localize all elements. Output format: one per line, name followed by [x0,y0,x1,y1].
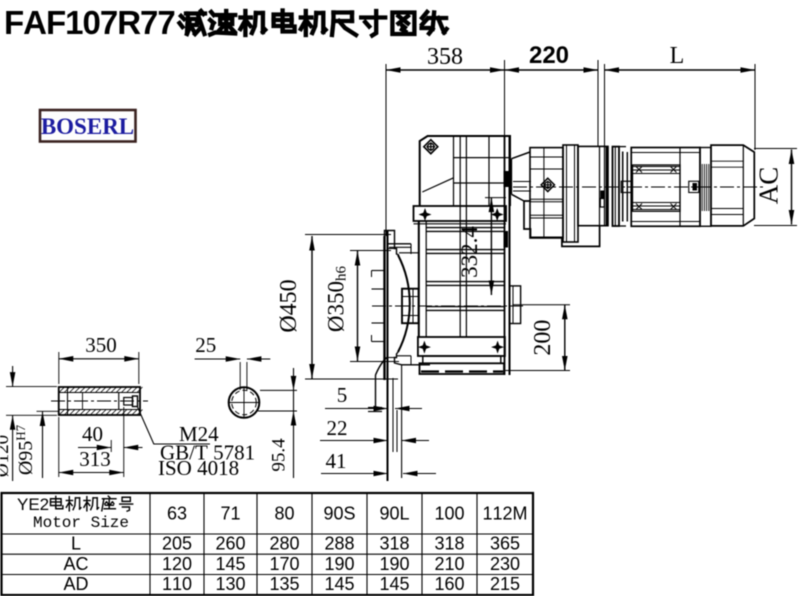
svg-text:350: 350 [85,333,117,357]
svg-text:358: 358 [427,44,463,70]
svg-text:215: 215 [490,574,520,594]
svg-text:145: 145 [324,574,354,594]
svg-text:L: L [670,43,685,69]
svg-text:280: 280 [269,534,299,554]
svg-text:120: 120 [162,554,192,574]
svg-text:170: 170 [269,554,299,574]
svg-text:318: 318 [379,534,409,554]
svg-text:145: 145 [215,554,245,574]
svg-text:190: 190 [379,554,409,574]
svg-text:313: 313 [79,447,111,471]
svg-text:135: 135 [269,574,299,594]
svg-text:Motor Size: Motor Size [33,514,129,532]
svg-text:L: L [71,534,81,554]
svg-text:63: 63 [167,504,187,524]
svg-text:Ø120: Ø120 [0,435,13,477]
svg-text:41: 41 [326,449,347,473]
svg-text:130: 130 [215,574,245,594]
svg-text:145: 145 [379,574,409,594]
svg-text:AC: AC [63,554,88,574]
svg-text:160: 160 [434,574,464,594]
svg-text:71: 71 [220,504,240,524]
svg-text:80: 80 [274,504,294,524]
svg-text:100: 100 [434,504,464,524]
svg-text:332.4: 332.4 [457,226,482,278]
svg-text:210: 210 [434,554,464,574]
svg-text:5: 5 [337,383,348,407]
svg-text:Ø450: Ø450 [276,279,302,332]
svg-text:BOSERL: BOSERL [41,114,134,139]
svg-text:25: 25 [195,333,216,357]
svg-text:230: 230 [490,554,520,574]
svg-text:110: 110 [162,574,192,594]
svg-text:220: 220 [529,42,569,69]
svg-text:90L: 90L [379,504,409,524]
svg-text:AC: AC [754,167,784,205]
svg-text:95.4: 95.4 [269,438,290,472]
svg-text:112M: 112M [482,504,527,524]
svg-text:YE2: YE2 [17,495,49,514]
svg-text:190: 190 [324,554,354,574]
svg-text:90S: 90S [323,504,355,524]
svg-text:ISO 4018: ISO 4018 [158,456,239,480]
svg-text:FAF107R77: FAF107R77 [4,4,175,41]
svg-text:AD: AD [63,574,88,594]
svg-text:22: 22 [327,416,348,440]
svg-text:205: 205 [162,534,192,554]
svg-text:318: 318 [434,534,464,554]
svg-text:365: 365 [490,534,520,554]
svg-text:40: 40 [82,422,103,446]
svg-text:200: 200 [530,320,556,356]
svg-text:260: 260 [215,534,245,554]
svg-text:288: 288 [324,534,354,554]
